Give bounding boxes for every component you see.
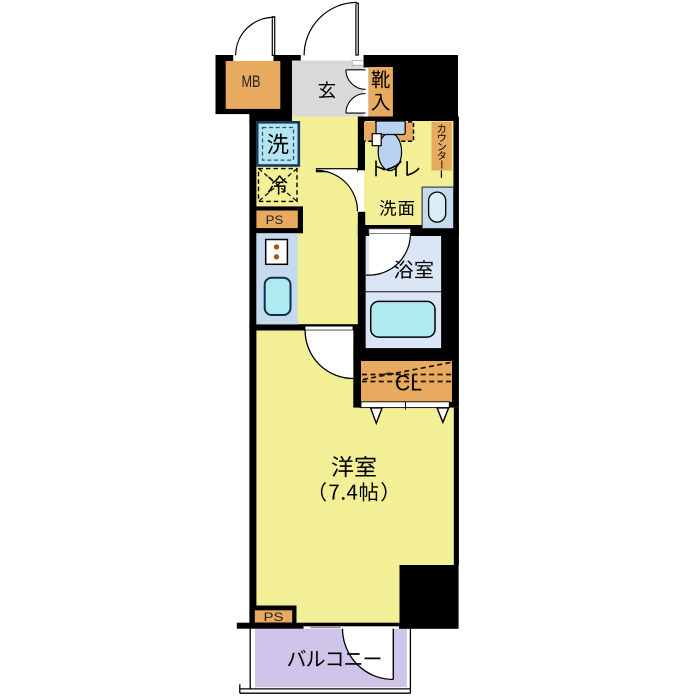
svg-text:PS: PS [264, 612, 284, 624]
svg-text:CL: CL [395, 370, 422, 395]
svg-text:MB: MB [242, 72, 261, 91]
svg-text:PS: PS [266, 215, 284, 227]
